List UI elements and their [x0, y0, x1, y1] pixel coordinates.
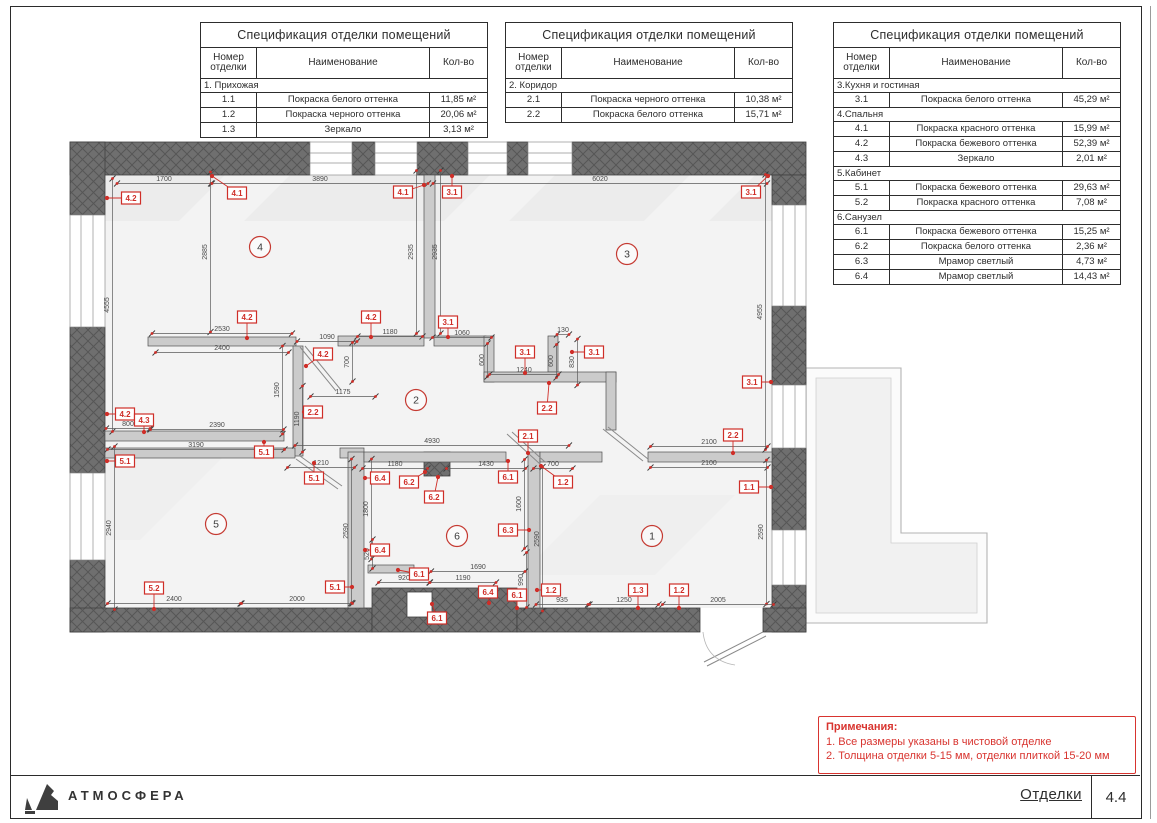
column-header: Кол-во: [735, 48, 792, 79]
table-cell: 5.1: [834, 181, 890, 196]
spec-table-grid: Номер отделкиНаименованиеКол-во2. Коридо…: [506, 48, 792, 122]
spec-table-hallway: Спецификация отделки помещенийНомер отде…: [200, 22, 488, 138]
table-cell: 4,73 м²: [1063, 255, 1120, 270]
table-cell: Покраска красного оттенка: [890, 196, 1063, 211]
table-cell: Покраска черного оттенка: [257, 108, 430, 123]
table-cell: Покраска красного оттенка: [890, 122, 1063, 137]
table-cell: 15,71 м²: [735, 108, 792, 122]
section-row: 6.Санузел: [834, 211, 1120, 225]
section-row: 4.Спальня: [834, 108, 1120, 122]
table-cell: 52,39 м²: [1063, 137, 1120, 152]
table-cell: Покраска белого оттенка: [890, 240, 1063, 255]
spec-table-rooms: Спецификация отделки помещенийНомер отде…: [833, 22, 1121, 285]
company-name: АТМОСФЕРА: [68, 788, 188, 803]
table-cell: Покраска бежевого оттенка: [890, 137, 1063, 152]
table-cell: Покраска бежевого оттенка: [890, 225, 1063, 240]
spec-table-grid: Номер отделкиНаименованиеКол-во1. Прихож…: [201, 48, 487, 137]
column-header: Наименование: [562, 48, 735, 79]
spec-table-corridor: Спецификация отделки помещенийНомер отде…: [505, 22, 793, 123]
table-cell: Мрамор светлый: [890, 255, 1063, 270]
note-line: 1. Все размеры указаны в чистовой отделк…: [826, 735, 1128, 750]
sheet-outer-edge: [1150, 6, 1151, 819]
table-cell: 20,06 м²: [430, 108, 487, 123]
table-cell: 4.1: [834, 122, 890, 137]
table-cell: Зеркало: [257, 123, 430, 137]
spec-table-title: Спецификация отделки помещений: [201, 23, 487, 48]
table-cell: 2.2: [506, 108, 562, 122]
table-cell: 2.1: [506, 93, 562, 108]
spec-table-title: Спецификация отделки помещений: [506, 23, 792, 48]
table-cell: Покраска бежевого оттенка: [890, 181, 1063, 196]
notes-title: Примечания:: [826, 720, 1128, 735]
spec-table-title: Спецификация отделки помещений: [834, 23, 1120, 48]
column-header: Кол-во: [430, 48, 487, 79]
table-cell: 4.2: [834, 137, 890, 152]
column-header: Наименование: [890, 48, 1063, 79]
table-cell: 2,36 м²: [1063, 240, 1120, 255]
table-cell: 10,38 м²: [735, 93, 792, 108]
table-cell: 6.2: [834, 240, 890, 255]
table-cell: 1.2: [201, 108, 257, 123]
sheet-number: 4.4: [1091, 776, 1140, 818]
note-line: 2. Толщина отделки 5-15 мм, отделки плит…: [826, 749, 1128, 764]
table-cell: 15,25 м²: [1063, 225, 1120, 240]
table-cell: 2,01 м²: [1063, 152, 1120, 167]
table-cell: Покраска белого оттенка: [890, 93, 1063, 108]
notes-lines: 1. Все размеры указаны в чистовой отделк…: [826, 735, 1128, 764]
column-header: Кол-во: [1063, 48, 1120, 79]
table-cell: 45,29 м²: [1063, 93, 1120, 108]
table-cell: 3.1: [834, 93, 890, 108]
section-row: 1. Прихожая: [201, 79, 487, 93]
table-cell: 1.3: [201, 123, 257, 137]
table-cell: Зеркало: [890, 152, 1063, 167]
table-cell: 11,85 м²: [430, 93, 487, 108]
table-cell: 6.3: [834, 255, 890, 270]
section-row: 5.Кабинет: [834, 167, 1120, 181]
table-cell: 3,13 м²: [430, 123, 487, 137]
table-cell: 14,43 м²: [1063, 270, 1120, 284]
notes-box: Примечания: 1. Все размеры указаны в чис…: [818, 716, 1136, 774]
table-cell: Покраска белого оттенка: [257, 93, 430, 108]
table-cell: Мрамор светлый: [890, 270, 1063, 284]
section-row: 3.Кухня и гостиная: [834, 79, 1120, 93]
table-cell: 6.4: [834, 270, 890, 284]
column-header: Номер отделки: [201, 48, 257, 79]
column-header: Наименование: [257, 48, 430, 79]
table-cell: 15,99 м²: [1063, 122, 1120, 137]
title-block: АТМОСФЕРА Отделки 4.4: [10, 775, 1140, 818]
drawing-sheet: 1700389060202885293529354555495525302400…: [0, 0, 1157, 823]
table-cell: 5.2: [834, 196, 890, 211]
table-cell: Покраска черного оттенка: [562, 93, 735, 108]
sheet-title: Отделки: [1020, 786, 1082, 803]
column-header: Номер отделки: [834, 48, 890, 79]
table-cell: 1.1: [201, 93, 257, 108]
table-cell: Покраска белого оттенка: [562, 108, 735, 122]
section-row: 2. Коридор: [506, 79, 792, 93]
company-logo-icon: [24, 780, 62, 814]
table-cell: 4.3: [834, 152, 890, 167]
table-cell: 7,08 м²: [1063, 196, 1120, 211]
spec-table-grid: Номер отделкиНаименованиеКол-во3.Кухня и…: [834, 48, 1120, 284]
table-cell: 6.1: [834, 225, 890, 240]
table-cell: 29,63 м²: [1063, 181, 1120, 196]
column-header: Номер отделки: [506, 48, 562, 79]
